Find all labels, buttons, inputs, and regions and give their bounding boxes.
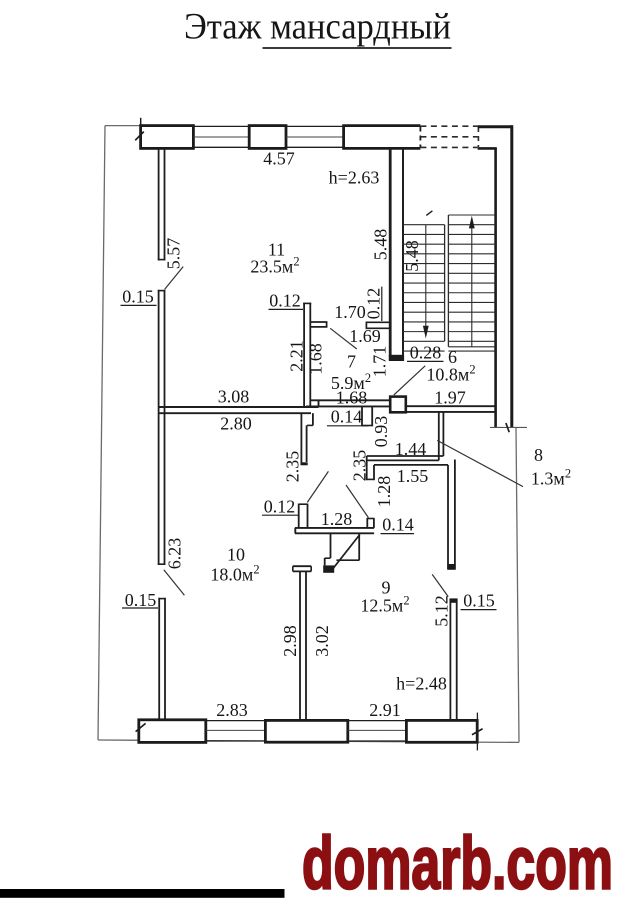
svg-text:9: 9 xyxy=(382,578,391,598)
svg-text:0.93: 0.93 xyxy=(371,416,391,448)
svg-text:4.57: 4.57 xyxy=(263,149,295,169)
svg-text:7: 7 xyxy=(347,352,356,372)
svg-text:2.83: 2.83 xyxy=(216,700,248,720)
svg-text:2.21: 2.21 xyxy=(287,340,307,372)
svg-text:1.55: 1.55 xyxy=(397,466,429,486)
svg-text:0.15: 0.15 xyxy=(122,287,154,307)
svg-text:1.44: 1.44 xyxy=(395,439,427,459)
svg-text:1.97: 1.97 xyxy=(434,388,466,408)
svg-text:5.48: 5.48 xyxy=(371,229,391,261)
svg-text:h=2.48: h=2.48 xyxy=(396,674,447,694)
svg-text:6.23: 6.23 xyxy=(165,538,185,570)
svg-text:23.5м2: 23.5м2 xyxy=(250,255,299,277)
svg-text:1.71: 1.71 xyxy=(370,346,390,378)
svg-text:0.14: 0.14 xyxy=(382,515,414,535)
svg-text:8: 8 xyxy=(534,445,543,465)
svg-text:domarb.com: domarb.com xyxy=(302,822,613,903)
svg-text:2.91: 2.91 xyxy=(369,700,401,720)
svg-text:18.0м2: 18.0м2 xyxy=(210,563,259,585)
svg-text:0.14: 0.14 xyxy=(331,407,363,427)
svg-text:0.15: 0.15 xyxy=(463,591,495,611)
svg-text:1.68: 1.68 xyxy=(306,343,326,375)
svg-text:5.48: 5.48 xyxy=(402,240,422,272)
svg-text:10: 10 xyxy=(227,545,245,565)
svg-text:5.12: 5.12 xyxy=(432,595,452,627)
svg-text:2.35: 2.35 xyxy=(350,450,370,482)
svg-text:1.28: 1.28 xyxy=(321,509,353,529)
svg-text:1.28: 1.28 xyxy=(374,476,394,508)
svg-text:0.12: 0.12 xyxy=(269,291,301,311)
svg-text:12.5м2: 12.5м2 xyxy=(360,594,409,616)
svg-text:Этаж мансардный: Этаж мансардный xyxy=(184,7,451,48)
svg-text:10.8м2: 10.8м2 xyxy=(426,363,475,385)
svg-text:0.15: 0.15 xyxy=(125,590,157,610)
svg-text:2.80: 2.80 xyxy=(220,414,252,434)
svg-text:1.3м2: 1.3м2 xyxy=(531,467,571,489)
svg-text:1.69: 1.69 xyxy=(349,326,381,346)
svg-text:1.68: 1.68 xyxy=(336,388,368,408)
svg-text:3.08: 3.08 xyxy=(218,387,250,407)
svg-text:2.35: 2.35 xyxy=(283,451,303,483)
svg-text:0.12: 0.12 xyxy=(364,288,384,320)
svg-text:2.98: 2.98 xyxy=(280,625,300,657)
svg-text:3.02: 3.02 xyxy=(312,625,332,657)
svg-text:h=2.63: h=2.63 xyxy=(329,168,380,188)
svg-text:1.70: 1.70 xyxy=(334,302,366,322)
svg-text:0.28: 0.28 xyxy=(410,343,442,363)
svg-text:5.57: 5.57 xyxy=(164,238,184,270)
svg-text:0.12: 0.12 xyxy=(264,497,296,517)
